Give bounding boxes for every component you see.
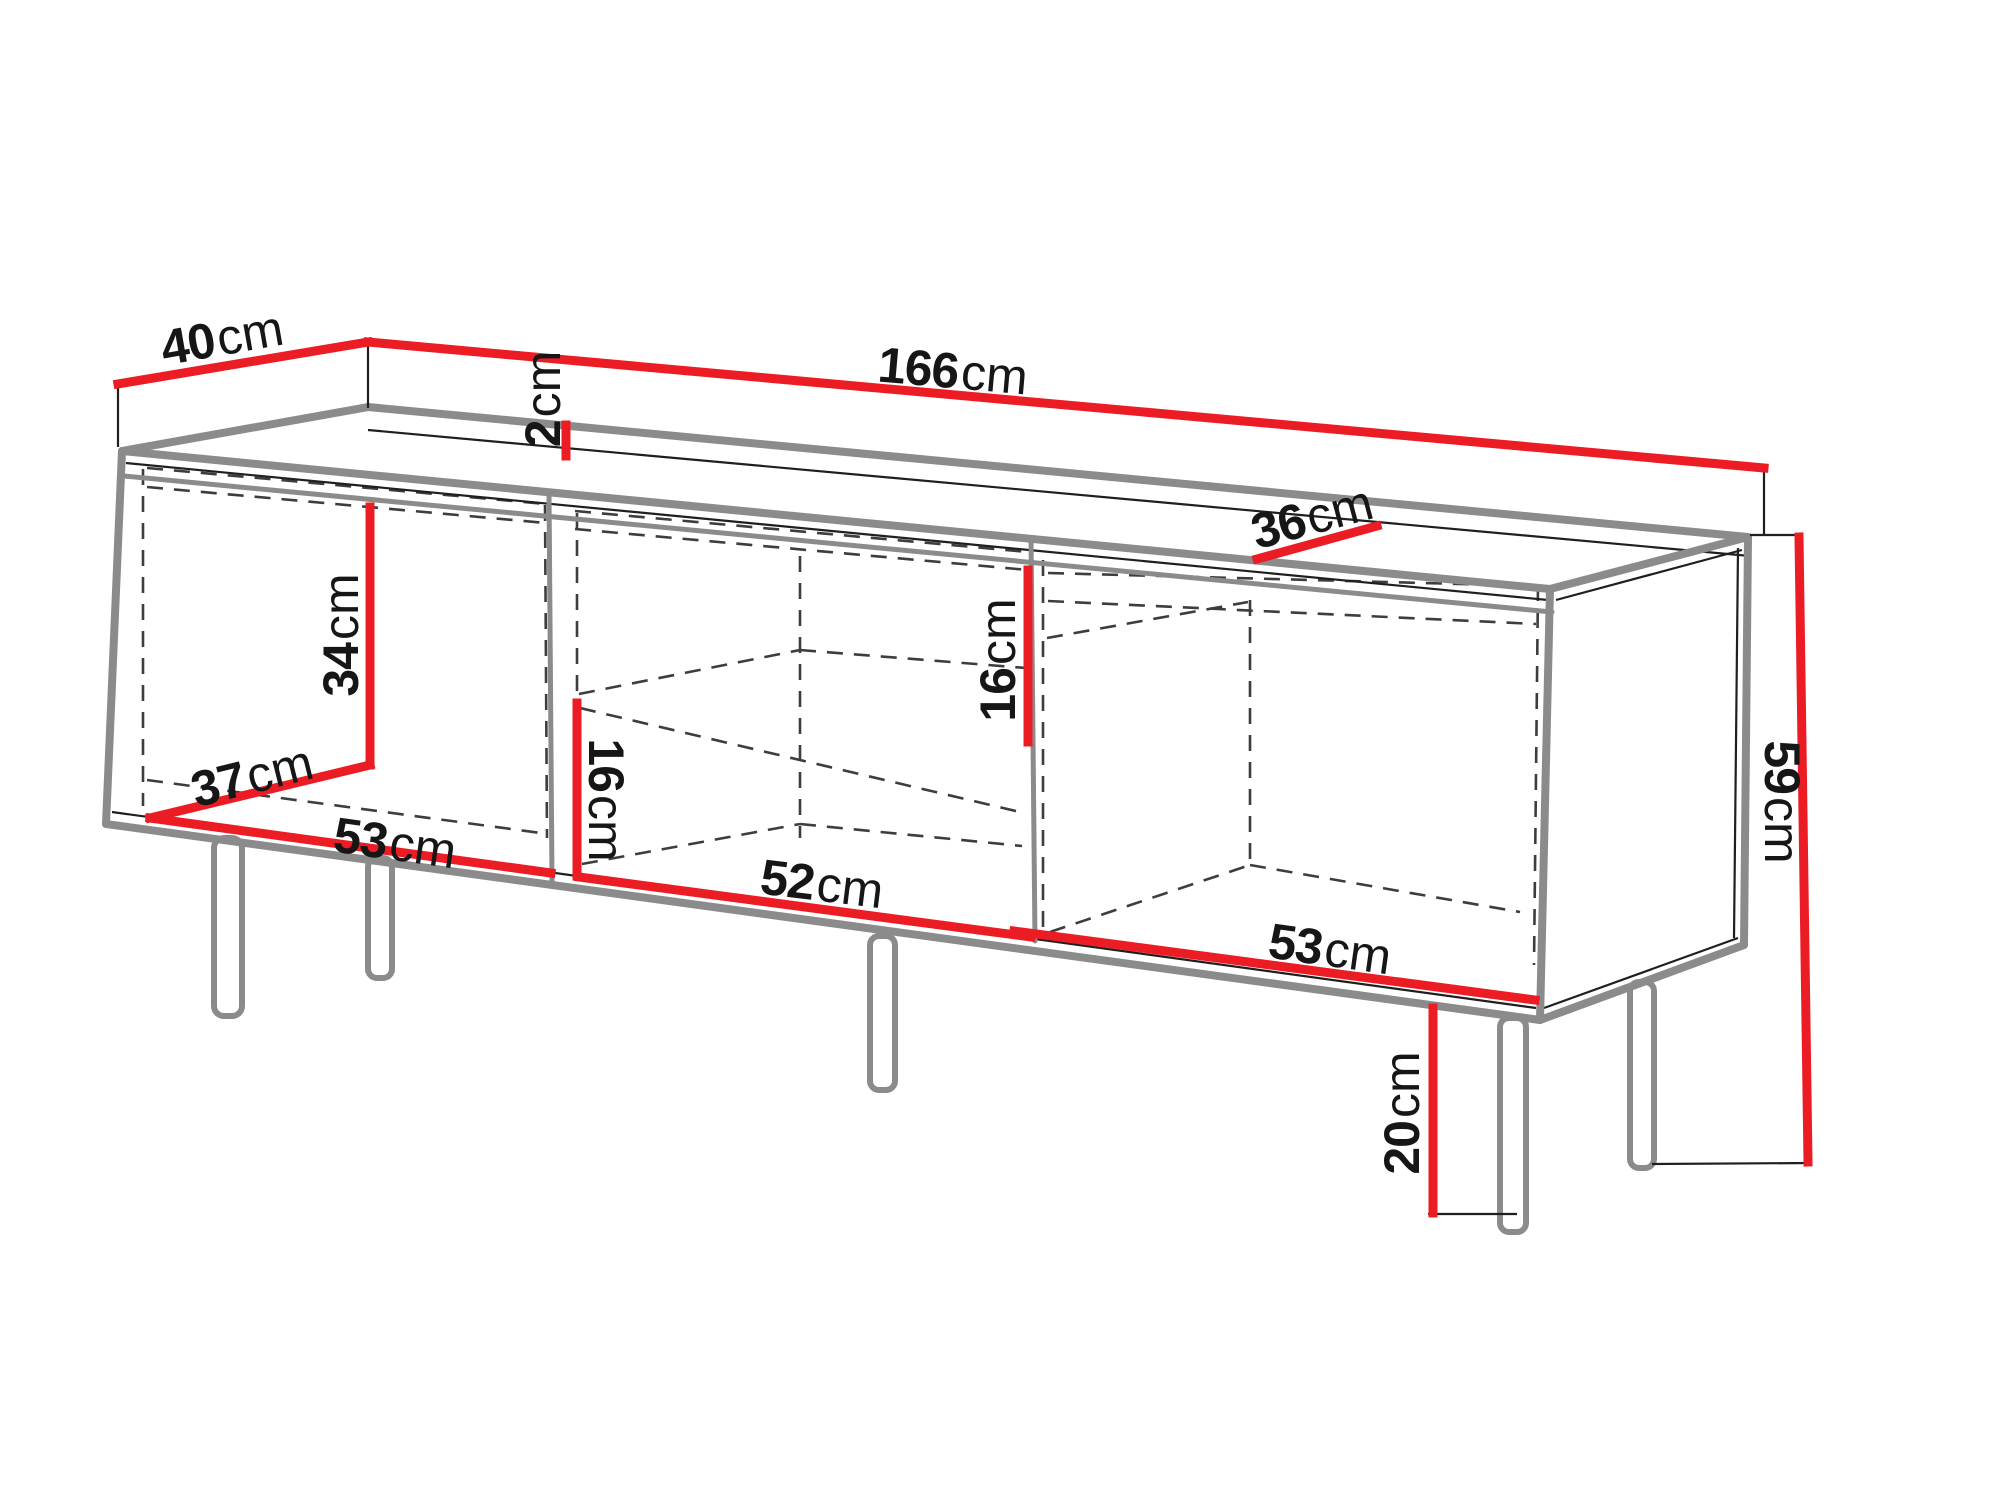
dimension-label-carcass-height: 59cm (1757, 740, 1807, 863)
dimension-label-middle-niche-height-right: 16cm (973, 598, 1023, 721)
dimension-value: 20 (1374, 1121, 1430, 1175)
furniture-dimension-diagram: 40cm 2cm 166cm 36cm 34cm 37cm 53cm 16cm … (0, 0, 2000, 1500)
dimension-unit: cm (814, 856, 887, 920)
dimension-value: 16 (578, 738, 634, 792)
dimension-label-total-width: 166cm (876, 340, 1030, 403)
dimension-label-middle-niche-height-left: 16cm (581, 738, 631, 861)
dimension-label-middle-interior-width: 52cm (758, 852, 886, 917)
dimension-label-top-panel-thickness: 2cm (518, 351, 568, 447)
leg-front-right (1500, 1018, 1526, 1232)
dimension-unit: cm (1754, 797, 1810, 864)
dimension-unit: cm (313, 573, 369, 640)
cabinet-outline (106, 407, 1750, 1020)
leg-back-right (1630, 982, 1654, 1168)
dimension-value: 53 (330, 807, 391, 870)
dimension-unit: cm (959, 344, 1030, 406)
dimension-value: 52 (757, 849, 817, 911)
dimension-label-left-interior-height: 34cm (316, 573, 366, 696)
dimension-value: 16 (970, 668, 1026, 722)
dimension-unit: cm (386, 815, 460, 880)
dimension-unit: cm (515, 351, 571, 418)
dimension-value: 34 (313, 643, 369, 697)
leg-front-left (214, 838, 242, 1016)
dimension-value: 59 (1754, 740, 1810, 794)
dimension-unit: cm (970, 598, 1026, 665)
dimension-value: 40 (156, 312, 219, 376)
leg-front-middle (870, 936, 895, 1090)
dimension-label-leg-height: 20cm (1377, 1051, 1427, 1174)
dimension-unit: cm (1374, 1051, 1430, 1118)
dimension-value: 53 (1265, 913, 1326, 976)
dimension-unit: cm (1321, 921, 1395, 986)
leg-back-left (368, 858, 392, 978)
dimension-unit: cm (212, 300, 287, 367)
dimension-value: 166 (876, 337, 961, 400)
dimension-value: 2 (515, 420, 571, 447)
dimension-unit: cm (578, 795, 634, 862)
